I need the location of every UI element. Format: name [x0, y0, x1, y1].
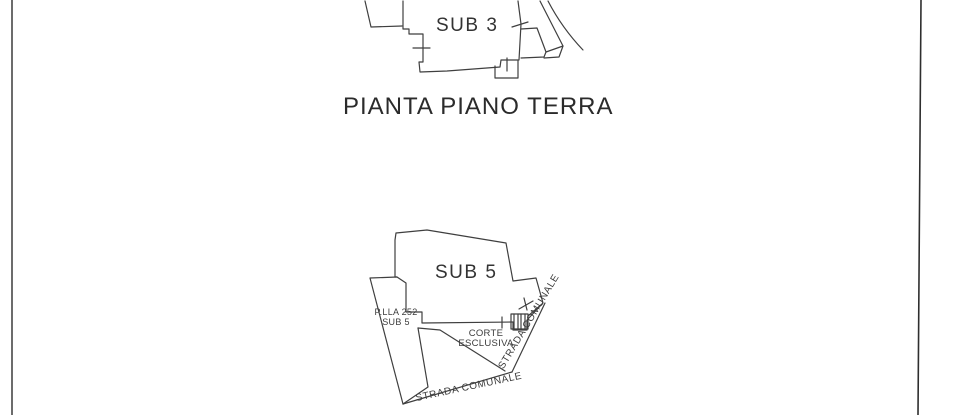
parcel-label: P.LLA 252 SUB 5: [372, 307, 420, 327]
sub3-label: SUB 3: [436, 15, 498, 37]
courtyard-strip-outline: [370, 277, 428, 404]
parcel-label-line1: P.LLA 252: [372, 307, 420, 317]
corte-esclusiva-label: CORTE ESCLUSIVA: [457, 329, 515, 349]
page-edge-right: [918, 0, 921, 415]
parcel-label-line2: SUB 5: [372, 317, 420, 327]
sub3-annex-left: [365, 1, 402, 27]
sub3-outline: [403, 1, 521, 78]
floor-plan-title: PIANTA PIANO TERRA: [343, 93, 614, 121]
scanned-plan-page: SUB 3 PIANTA PIANO TERRA SUB 5 P.LLA 252…: [0, 0, 960, 415]
sub5-label: SUB 5: [435, 262, 497, 284]
sub3-right-structures: [521, 1, 583, 58]
cadastral-drawing-canvas: [0, 0, 960, 415]
